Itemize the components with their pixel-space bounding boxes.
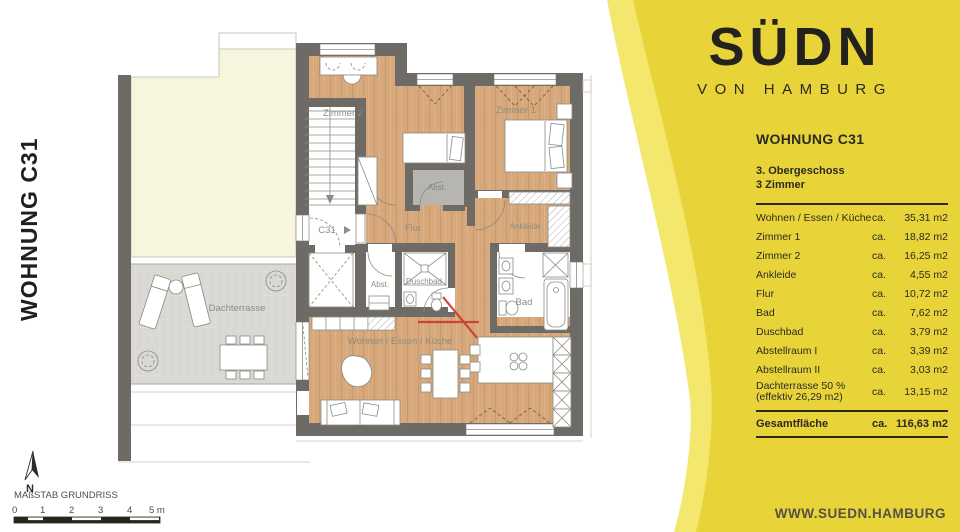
- area-value: 18,82 m2: [896, 231, 948, 243]
- elevator: [309, 253, 353, 307]
- area-value: 35,31 m2: [896, 212, 948, 224]
- terrace-side-table: [169, 280, 183, 294]
- room-label-flur: Flur: [405, 223, 421, 234]
- floor-plan: C31: [0, 0, 600, 532]
- roof-terrace: [118, 257, 310, 462]
- ca-label: ca.: [872, 364, 896, 376]
- ca-label: ca.: [872, 326, 896, 338]
- floor-info: 3. Obergeschoss 3 Zimmer: [756, 164, 948, 192]
- room-label-zimmer2: Zimmer 2: [323, 108, 363, 119]
- total-label: Gesamtfläche: [756, 418, 872, 430]
- total-row: Gesamtfläche ca. 116,63 m2: [756, 410, 948, 438]
- room-label: Duschbad: [756, 326, 872, 338]
- table-row: Flur ca. 10,72 m2: [756, 284, 948, 303]
- room-label-abst-mid: Abst.: [371, 280, 389, 289]
- table-row: Abstellraum I ca. 3,39 m2: [756, 341, 948, 360]
- ca-label: ca.: [872, 418, 896, 430]
- area-value: 10,72 m2: [896, 288, 948, 300]
- table-row: Abstellraum II ca. 3,03 m2: [756, 360, 948, 379]
- scale-tick: 4: [127, 505, 132, 516]
- single-bed: [403, 133, 465, 163]
- area-value: 16,25 m2: [896, 250, 948, 262]
- ca-label: ca.: [872, 307, 896, 319]
- scale-title: MAßSTAB GRUNDRISS: [14, 490, 118, 501]
- room-label-bad: Bad: [516, 297, 533, 308]
- room-label-sub: (effektiv 26,29 m2): [756, 391, 843, 403]
- apartment-heading: WOHNUNG C31: [756, 131, 948, 147]
- brand-subtitle: VON HAMBURG: [650, 81, 940, 98]
- area-value: 3,79 m2: [896, 326, 948, 338]
- entry-arrow-icon: [344, 226, 351, 234]
- table-row: Ankleide ca. 4,55 m2: [756, 265, 948, 284]
- stair-direction-arrow-icon: [326, 195, 334, 204]
- wardrobe: [358, 157, 377, 205]
- room-label-duschbad: Duschbad: [406, 277, 442, 286]
- room-label: Wohnen / Essen / Küche: [756, 212, 872, 224]
- dining-set: [421, 350, 470, 398]
- floor-line: 3. Obergeschoss: [756, 164, 948, 178]
- scale-tick: 5 m: [149, 505, 165, 516]
- apartment-details: WOHNUNG C31 3. Obergeschoss 3 Zimmer Woh…: [756, 131, 948, 438]
- table-row: Wohnen / Essen / Küche ca. 35,31 m2: [756, 208, 948, 227]
- unit-door-label: C31: [318, 225, 335, 236]
- scale-tick: 0: [12, 505, 17, 516]
- flyer-page: { "title_vertical": "WOHNUNG C31", "logo…: [0, 0, 960, 532]
- scale-tick: 1: [40, 505, 45, 516]
- kitchen-island: [470, 337, 553, 383]
- toilet: [432, 299, 442, 311]
- area-value: 7,62 m2: [896, 307, 948, 319]
- north-arrow-icon: N: [25, 451, 39, 495]
- area-value: 13,15 m2: [896, 386, 948, 398]
- brand-name: SÜDN: [650, 20, 940, 74]
- ca-label: ca.: [872, 250, 896, 262]
- ca-label: ca.: [872, 386, 896, 398]
- info-panel: SÜDN VON HAMBURG WOHNUNG C31 3. Obergesc…: [560, 0, 960, 532]
- room-label: Flur: [756, 288, 872, 300]
- table-row: Bad ca. 7,62 m2: [756, 303, 948, 322]
- table-row: Dachterrasse 50 % (effektiv 26,29 m2) ca…: [756, 379, 948, 405]
- scale-tick: 3: [98, 505, 103, 516]
- ca-label: ca.: [872, 345, 896, 357]
- scale-bar: MAßSTAB GRUNDRISS 0 1 2 3 4 5 m: [12, 490, 165, 523]
- total-value: 116,63 m2: [896, 418, 948, 430]
- room-label-ankleide: Ankleide: [510, 222, 541, 231]
- room-label-abst-top: Abst.: [428, 183, 446, 192]
- sofa: [321, 400, 400, 425]
- ca-label: ca.: [872, 269, 896, 281]
- website-url: WWW.SUEDN.HAMBURG: [775, 506, 946, 521]
- stairwell: [305, 107, 355, 205]
- room-label: Ankleide: [756, 269, 872, 281]
- table-row: Zimmer 1 ca. 18,82 m2: [756, 227, 948, 246]
- brand-logo: SÜDN VON HAMBURG: [650, 20, 940, 98]
- room-label: Abstellraum II: [756, 364, 872, 376]
- rooms-line: 3 Zimmer: [756, 178, 948, 192]
- ca-label: ca.: [872, 288, 896, 300]
- scale-tick: 2: [69, 505, 74, 516]
- room-label-wohnen: Wohnen / Essen / Küche: [348, 336, 452, 347]
- ca-label: ca.: [872, 212, 896, 224]
- neighbour-roof-area: [131, 33, 296, 257]
- room-label: Zimmer 1: [756, 231, 872, 243]
- room-label: Dachterrasse 50 % (effektiv 26,29 m2): [756, 381, 872, 404]
- desk: [320, 57, 377, 75]
- area-table: Wohnen / Essen / Küche ca. 35,31 m2 Zimm…: [756, 203, 948, 438]
- table-row: Duschbad ca. 3,79 m2: [756, 322, 948, 341]
- room-label: Bad: [756, 307, 872, 319]
- room-label-zimmer1: Zimmer 1: [496, 105, 536, 116]
- room-label: Abstellraum I: [756, 345, 872, 357]
- table-row: Zimmer 2 ca. 16,25 m2: [756, 246, 948, 265]
- terrace-dining-set: [220, 336, 267, 379]
- room-label: Zimmer 2: [756, 250, 872, 262]
- abstellraum2-fixtures: [369, 296, 389, 310]
- room-label-dachterrasse: Dachterrasse: [209, 303, 266, 314]
- ca-label: ca.: [872, 231, 896, 243]
- area-value: 3,03 m2: [896, 364, 948, 376]
- area-value: 4,55 m2: [896, 269, 948, 281]
- entry-door-leaf: [356, 214, 365, 243]
- area-value: 3,39 m2: [896, 345, 948, 357]
